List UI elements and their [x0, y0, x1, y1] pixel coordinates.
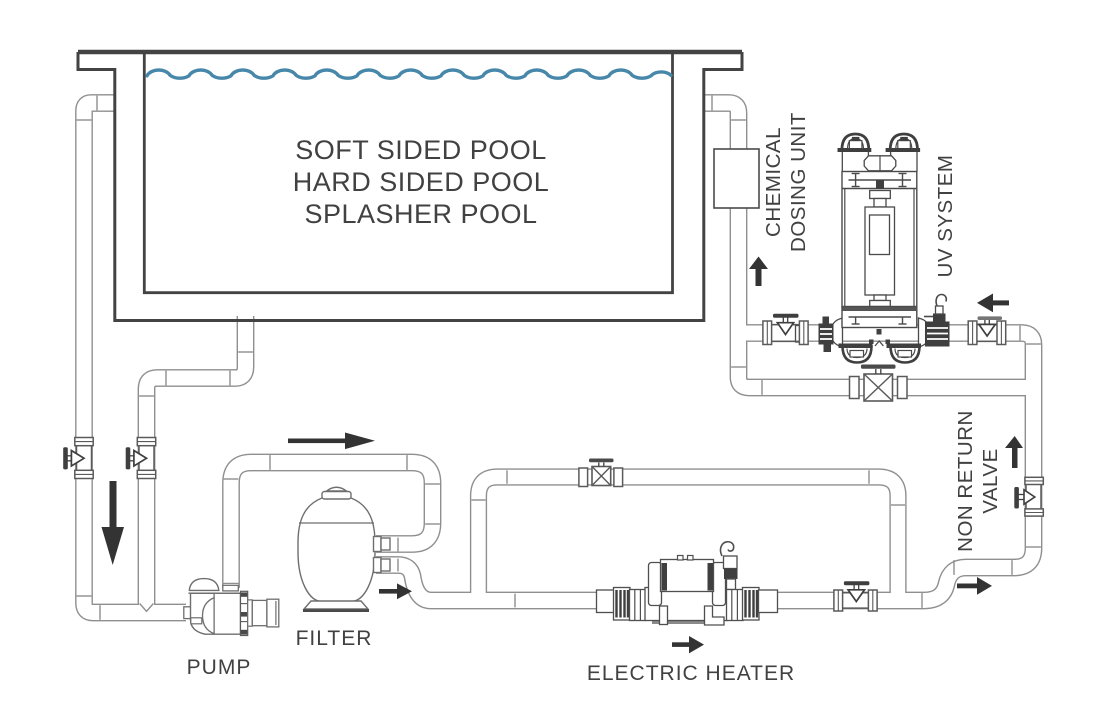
svg-text:NON RETURN: NON RETURN: [954, 410, 977, 552]
svg-text:FILTER: FILTER: [296, 627, 373, 650]
svg-text:VALVE: VALVE: [979, 448, 1002, 514]
svg-text:SOFT SIDED POOL: SOFT SIDED POOL: [295, 135, 547, 165]
svg-text:SPLASHER POOL: SPLASHER POOL: [304, 199, 537, 229]
svg-text:ELECTRIC HEATER: ELECTRIC HEATER: [587, 662, 795, 685]
svg-text:CHEMICAL: CHEMICAL: [762, 127, 785, 237]
svg-text:UV SYSTEM: UV SYSTEM: [934, 155, 957, 278]
svg-text:DOSING UNIT: DOSING UNIT: [787, 112, 810, 252]
svg-text:HARD SIDED POOL: HARD SIDED POOL: [293, 167, 550, 197]
svg-text:PUMP: PUMP: [187, 656, 252, 679]
